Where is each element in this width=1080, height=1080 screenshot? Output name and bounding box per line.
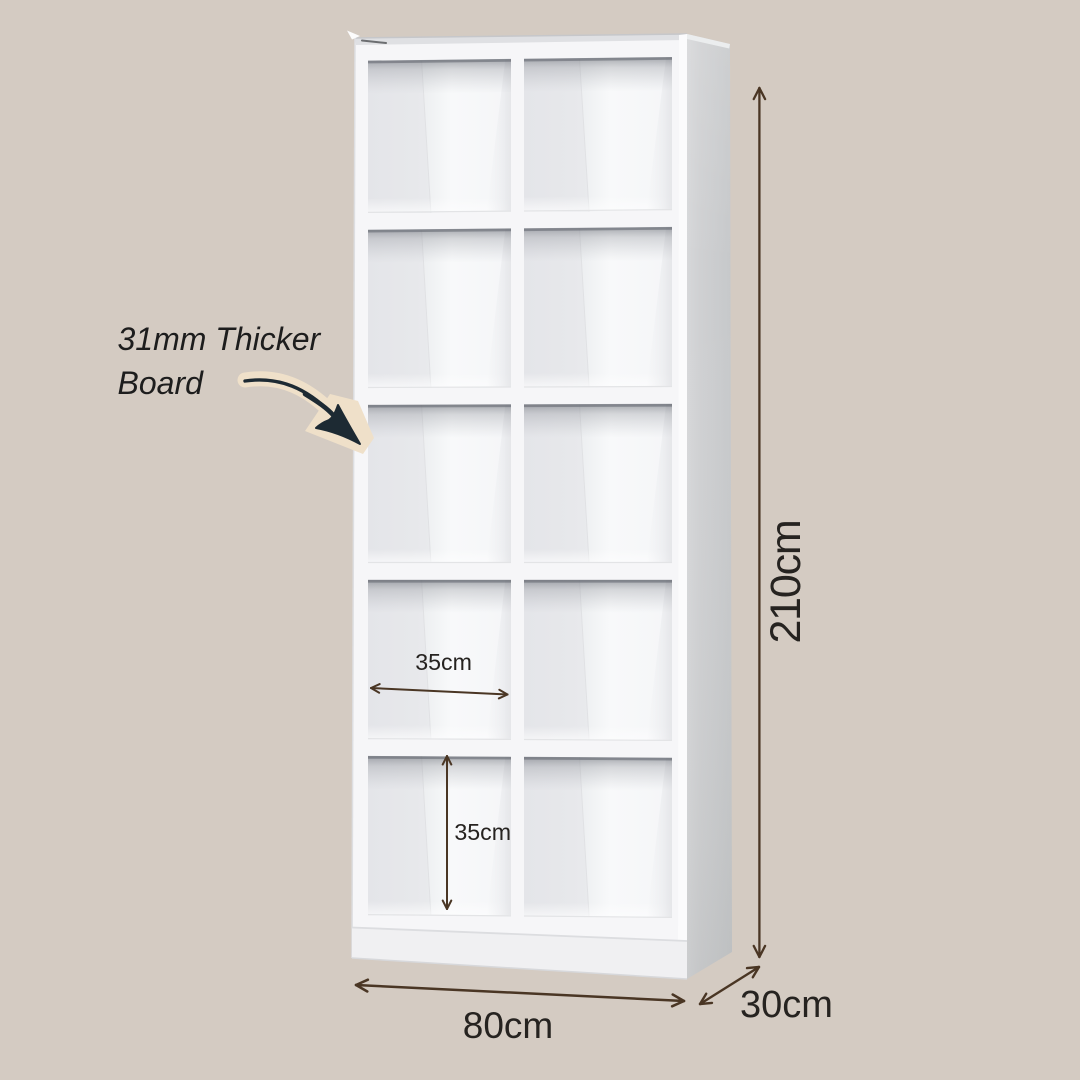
svg-text:35cm: 35cm [415,649,472,675]
svg-text:35cm: 35cm [454,819,511,845]
svg-text:210cm: 210cm [762,520,810,643]
svg-text:30cm: 30cm [740,984,833,1026]
svg-text:80cm: 80cm [463,1005,553,1046]
svg-text:Board: Board [118,365,205,401]
svg-text:31mm Thicker: 31mm Thicker [118,321,322,357]
